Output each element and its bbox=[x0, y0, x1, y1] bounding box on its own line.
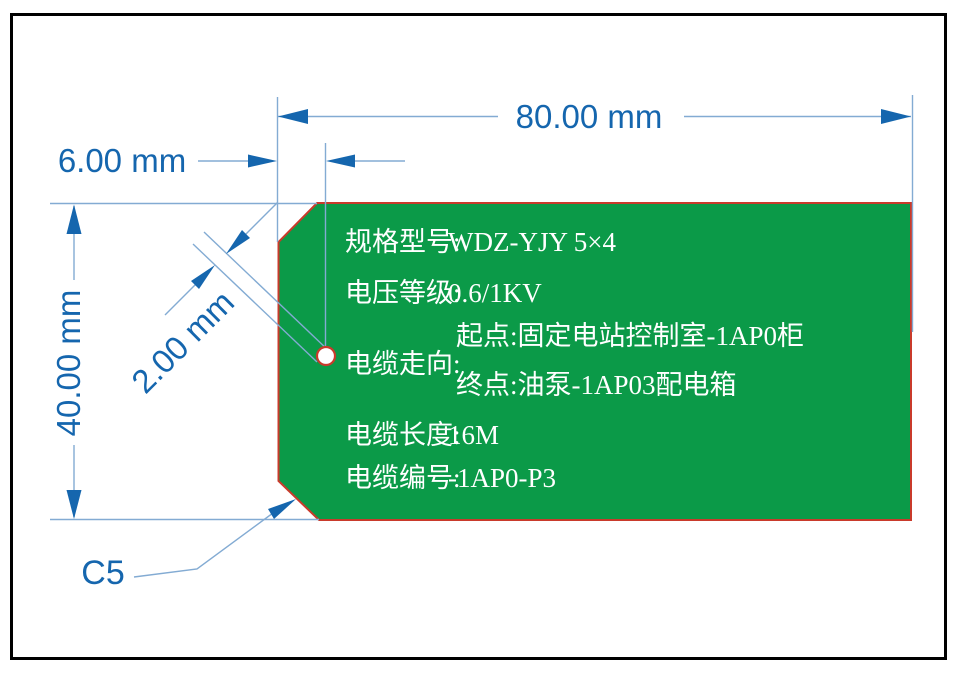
chamfer-callout-text: C5 bbox=[70, 556, 136, 590]
dim-offset-text: 6.00 mm bbox=[42, 144, 202, 178]
cad-drawing-canvas: 80.00 mm 6.00 mm 40.00 mm 2.00 mm C5 规格型… bbox=[0, 0, 960, 678]
chamfer-leader-line bbox=[134, 513, 273, 577]
arrow-height-bottom bbox=[67, 490, 82, 519]
arrow-width-right bbox=[881, 109, 911, 124]
tag-row-spec-value: WDZ-YJY 5×4 bbox=[448, 228, 616, 256]
tag-row-route-start: 起点:固定电站控制室-1AP0柜 bbox=[456, 322, 804, 350]
arrow-offset-left bbox=[326, 155, 355, 168]
tag-row-number-value: -1AP0-P3 bbox=[448, 464, 556, 492]
tag-row-spec-label: 规格型号: bbox=[345, 228, 461, 256]
dim-width-text: 80.00 mm bbox=[489, 100, 689, 134]
dim-line-hole-tail-upper bbox=[244, 203, 278, 237]
tag-row-length-label: 电缆长度: bbox=[345, 421, 461, 449]
tag-row-number-label: 电缆编号: bbox=[345, 464, 461, 492]
arrow-chamfer-leader bbox=[268, 499, 296, 519]
tag-row-route-end: 终点:油泵-1AP03配电箱 bbox=[456, 371, 737, 399]
arrow-height-top bbox=[67, 205, 82, 235]
tag-row-length-value: 16M bbox=[448, 421, 499, 449]
arrow-width-left bbox=[278, 109, 308, 124]
tag-row-voltage-label: 电压等级: bbox=[345, 279, 461, 307]
tag-row-voltage-value: 0.6/1KV bbox=[448, 279, 542, 307]
tag-hole bbox=[317, 347, 335, 365]
dim-height-text: 40.00 mm bbox=[52, 263, 86, 463]
arrow-offset-right bbox=[248, 155, 277, 168]
tag-row-route-label: 电缆走向: bbox=[345, 350, 461, 378]
